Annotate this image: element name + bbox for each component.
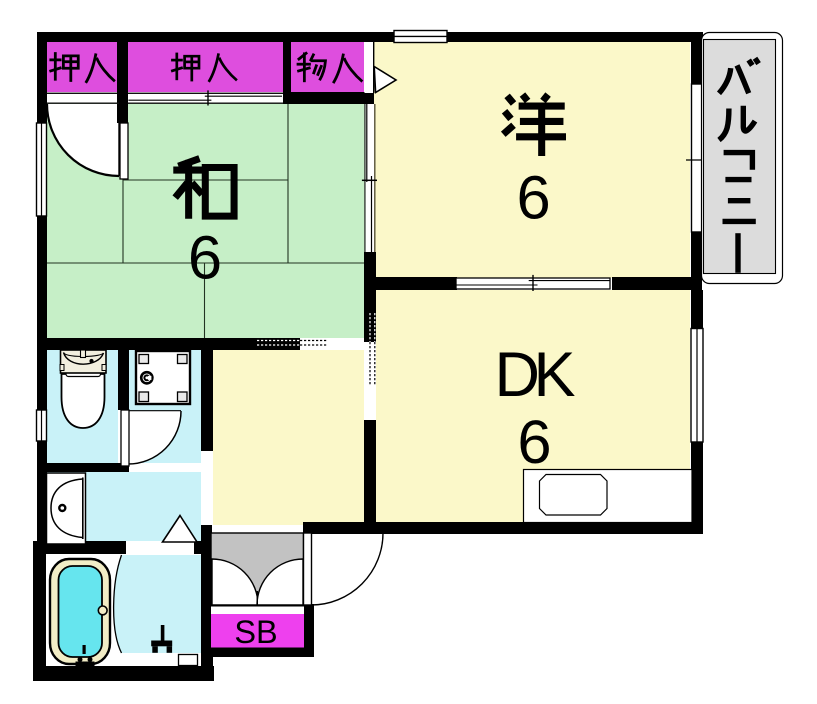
svg-text:6: 6 — [517, 408, 551, 477]
svg-text:6: 6 — [188, 224, 222, 293]
svg-text:DK: DK — [495, 340, 576, 410]
svg-text:SB: SB — [234, 614, 277, 650]
svg-text:6: 6 — [516, 164, 550, 233]
